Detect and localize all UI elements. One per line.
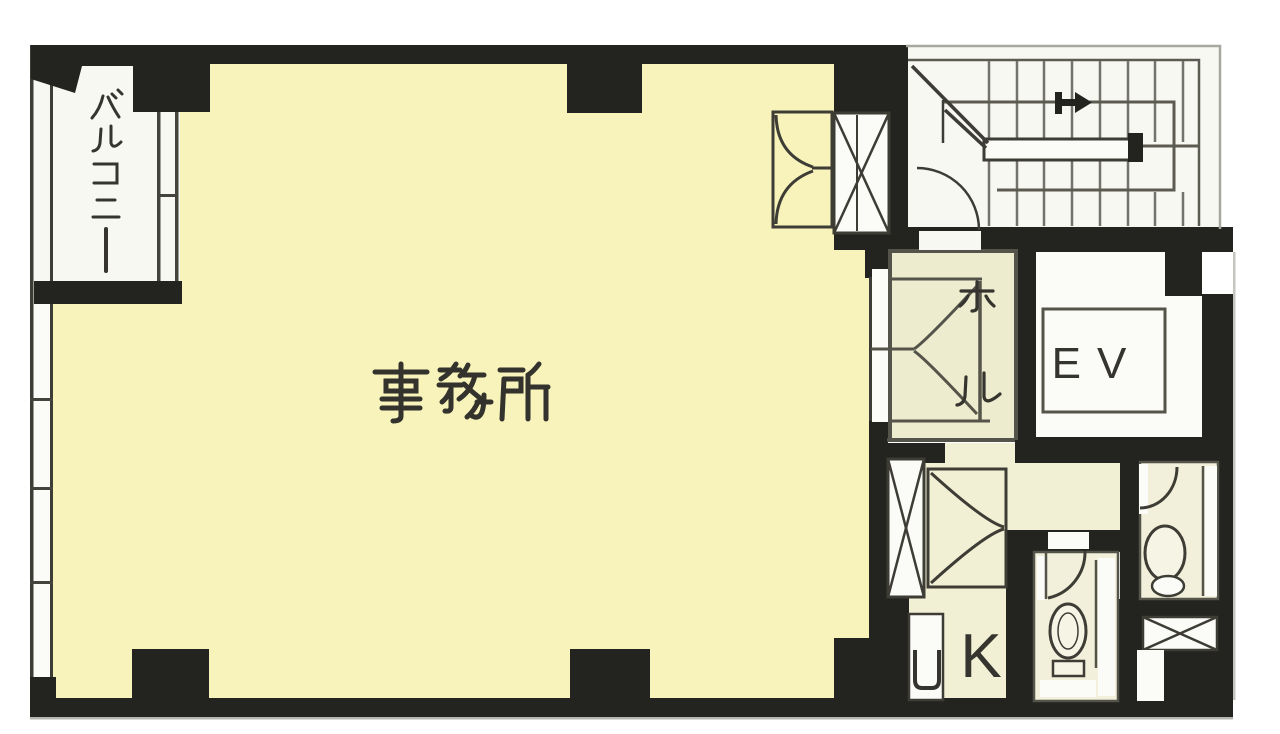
svg-text:K: K (960, 622, 1001, 691)
svg-text:EV: EV (1052, 339, 1143, 388)
